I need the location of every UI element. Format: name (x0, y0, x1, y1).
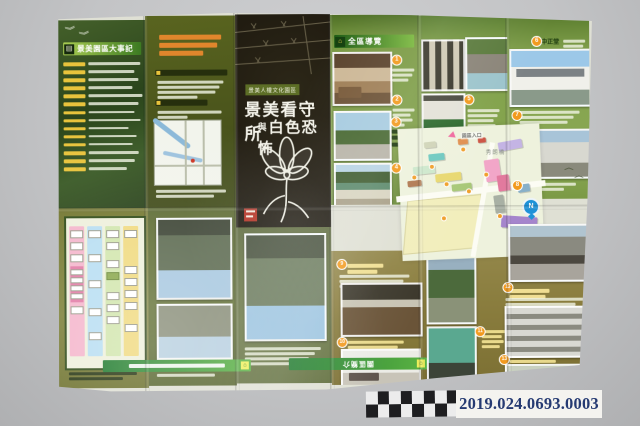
text-bar (392, 79, 408, 82)
calibration-cell (389, 404, 401, 417)
entrance-label: 園區入口 (461, 132, 483, 140)
panel-visit-info (145, 15, 236, 207)
photo-fence-pool (465, 37, 508, 91)
map-poi-dot (443, 181, 449, 187)
photo-visitor-center (332, 52, 392, 106)
timeline-date-chip (63, 95, 85, 99)
flowchart-column-green (105, 226, 121, 356)
text-bar (89, 143, 133, 146)
timeline-row (64, 119, 144, 123)
timeline-rows (63, 62, 144, 176)
timeline-date-chip (64, 151, 86, 155)
text-bar (520, 116, 574, 119)
brochure-sheet: ︾ ︾ ▤ 景美園區大事記 (55, 10, 596, 393)
text-bar (468, 109, 500, 112)
panel-cover: 景美人權文化園區 景美看守所 與白色恐怖 (235, 14, 331, 227)
poi-6-label: 中正堂 (541, 37, 559, 46)
photo-building-upside-down (156, 217, 232, 299)
calibration-cell (435, 404, 447, 417)
timeline-date-chip (64, 119, 86, 123)
calibration-cell (401, 404, 413, 417)
timeline-date-chip (64, 143, 86, 147)
timeline-row (64, 135, 144, 139)
timeline-title-banner: ▤ 景美園區大事記 (63, 42, 141, 55)
slogan-text-block (159, 32, 225, 59)
dove-icon: ︾ (78, 30, 91, 41)
barbed-wire-icon (235, 16, 330, 76)
calibration-cell (435, 391, 447, 404)
text-bar (89, 111, 135, 114)
house-icon: ⌂ (241, 361, 249, 369)
timeline-row (64, 159, 144, 163)
poi-marker-2: 2 (391, 95, 402, 106)
tour-banner-label: 全區導覽 (348, 36, 382, 47)
text-bar (159, 35, 221, 40)
text-bar (69, 372, 137, 375)
text-bar (88, 70, 134, 73)
color-calibration-bar (366, 390, 458, 417)
poi-marker-5: 5 (463, 94, 474, 105)
text-bar (69, 377, 123, 380)
text-bar (482, 340, 504, 343)
map-poi-dot (460, 146, 466, 152)
timeline-row (64, 143, 144, 147)
calibration-cell (366, 404, 378, 417)
flowchart-frame (64, 216, 147, 370)
photo-building-upside-down (244, 233, 327, 341)
calibration-cell (377, 391, 389, 404)
poi-marker-9: 9 (336, 259, 347, 270)
photo-workshop-hall (505, 364, 591, 385)
text-bar (392, 69, 414, 72)
catalog-number: 2019.024.0693.0003 (459, 394, 599, 414)
poi-text-block (392, 67, 416, 84)
flowchart-column-pink (69, 226, 85, 356)
text-bar (157, 91, 215, 94)
back-banner-right-label: 園區簡介 (342, 359, 374, 369)
info-text-block (157, 79, 227, 101)
text-bar (510, 360, 556, 363)
text-bar (468, 119, 494, 122)
poi-marker-4: 4 (391, 163, 402, 174)
timeline-date-chip (64, 111, 86, 115)
text-bar (88, 86, 132, 89)
house-icon: ⌂ (335, 36, 345, 46)
text-bar (88, 102, 138, 105)
text-bar (563, 40, 585, 43)
poi-marker-3: 3 (391, 117, 402, 128)
timeline-row (64, 167, 144, 171)
text-bar (468, 114, 498, 117)
section-header (155, 100, 207, 106)
poi-marker-1: 1 (391, 55, 402, 66)
location-map-thumb (154, 120, 222, 186)
timeline-date-chip (63, 78, 85, 82)
back-banner-left: ⌂ (103, 359, 251, 372)
text-bar (482, 345, 500, 348)
timeline-row (63, 102, 143, 106)
text-bar (339, 275, 409, 278)
photo-building-upside-down (157, 303, 233, 359)
photo-backdrop: ︾ ︾ ▤ 景美園區大事記 (0, 0, 640, 426)
text-bar (88, 78, 138, 81)
timeline-date-chip (64, 159, 86, 163)
building-icon: ▤ (64, 44, 74, 54)
photo-courtyard-garden (426, 256, 476, 324)
back-banner-left-textbar (129, 364, 225, 369)
text-bar (563, 45, 583, 48)
poi-marker-11: 11 (475, 326, 486, 337)
timeline-row (64, 151, 144, 155)
flowchart-column-blue (87, 226, 103, 356)
back-banner-right: ⌂ 園區簡介 (289, 357, 427, 370)
text-bar (509, 288, 549, 292)
calibration-cell (389, 391, 401, 404)
text-bar (245, 352, 315, 355)
text-bar (89, 135, 137, 138)
text-bar (506, 298, 584, 301)
timeline-date-chip (64, 167, 86, 171)
site-location-dot (191, 159, 195, 163)
bird-icon: ︿ (574, 171, 584, 180)
river-shape (163, 151, 203, 163)
cover-title-conjunction: 與 (258, 122, 267, 132)
road-line (203, 121, 205, 185)
calibration-cell (400, 391, 412, 404)
bird-icon: ︿ (564, 163, 574, 172)
panel-timeline: ︾ ︾ ▤ 景美園區大事記 (57, 20, 146, 208)
poi-marker-7: 7 (512, 110, 523, 121)
timeline-date-chip (64, 127, 86, 131)
text-bar (156, 190, 226, 193)
text-bar (159, 43, 217, 48)
timeline-date-chip (64, 135, 86, 139)
footnote-text-block (156, 188, 228, 201)
text-bar (157, 374, 215, 377)
photo-park-street (334, 111, 392, 161)
text-bar (88, 62, 140, 65)
timeline-date-chip (63, 62, 85, 66)
poi-marker-8: 8 (512, 180, 523, 191)
timeline-row (64, 127, 144, 131)
calibration-cell (366, 391, 378, 404)
photo-arched-corridor (421, 39, 465, 91)
photo-workroom-tables (505, 306, 589, 358)
section-header (155, 70, 227, 76)
photo-cell-corridor (427, 326, 477, 385)
timeline-date-chip (63, 70, 85, 74)
calibration-cell (378, 404, 390, 417)
text-bar (157, 86, 219, 89)
timeline-row (63, 78, 143, 82)
series-label: 景美人權文化園區 (245, 84, 299, 95)
text-bar (88, 94, 142, 97)
text-bar (392, 74, 412, 77)
timeline-date-chip (63, 87, 85, 91)
timeline-title: 景美園區大事記 (77, 43, 133, 54)
timeline-row (64, 111, 144, 115)
text-bar (159, 51, 203, 56)
text-bar (156, 195, 214, 198)
map-field-area (403, 194, 482, 255)
poi-marker-6: 6 (531, 36, 542, 47)
calibration-cell (423, 391, 435, 404)
flowchart-column-yellow (123, 226, 139, 356)
photo-visiting-booths (340, 282, 422, 336)
timeline-row (63, 94, 143, 98)
text-bar (89, 119, 141, 122)
catalog-number-label: 2019.024.0693.0003 (456, 390, 602, 418)
photo-chungcheng-hall (509, 49, 590, 107)
text-bar (347, 263, 383, 267)
road-line (155, 165, 221, 167)
text-bar (157, 81, 223, 84)
text-bar (158, 111, 222, 114)
entrance-arrow-icon: ◀ (446, 129, 456, 142)
timeline-row (63, 62, 143, 66)
map-building (424, 141, 437, 148)
calibration-cell (412, 404, 424, 417)
tour-banner: ⌂ 全區導覽 (334, 35, 414, 48)
text-bar (89, 127, 129, 130)
text-bar (245, 347, 321, 350)
poi-marker-10: 10 (337, 337, 348, 348)
text-bar (89, 167, 127, 170)
timeline-date-chip (63, 103, 85, 107)
bridge-label: 秀朗橋 (486, 148, 506, 156)
text-bar (520, 111, 580, 114)
text-bar (89, 159, 135, 162)
text-bar (89, 151, 139, 154)
timeline-row (63, 70, 143, 74)
text-bar (348, 341, 404, 344)
road-line (185, 121, 187, 185)
photo-renai-courtyard (508, 224, 592, 282)
text-bar (157, 96, 197, 99)
text-bar (393, 109, 415, 112)
calibration-cell (412, 391, 424, 404)
map-building (428, 153, 445, 162)
text-bar (482, 335, 502, 338)
text-bar (158, 116, 188, 119)
timeline-row (63, 86, 143, 90)
dove-icon: ︾ (64, 25, 77, 36)
calibration-cell (423, 404, 435, 417)
photo-green-roof-house (334, 163, 392, 205)
